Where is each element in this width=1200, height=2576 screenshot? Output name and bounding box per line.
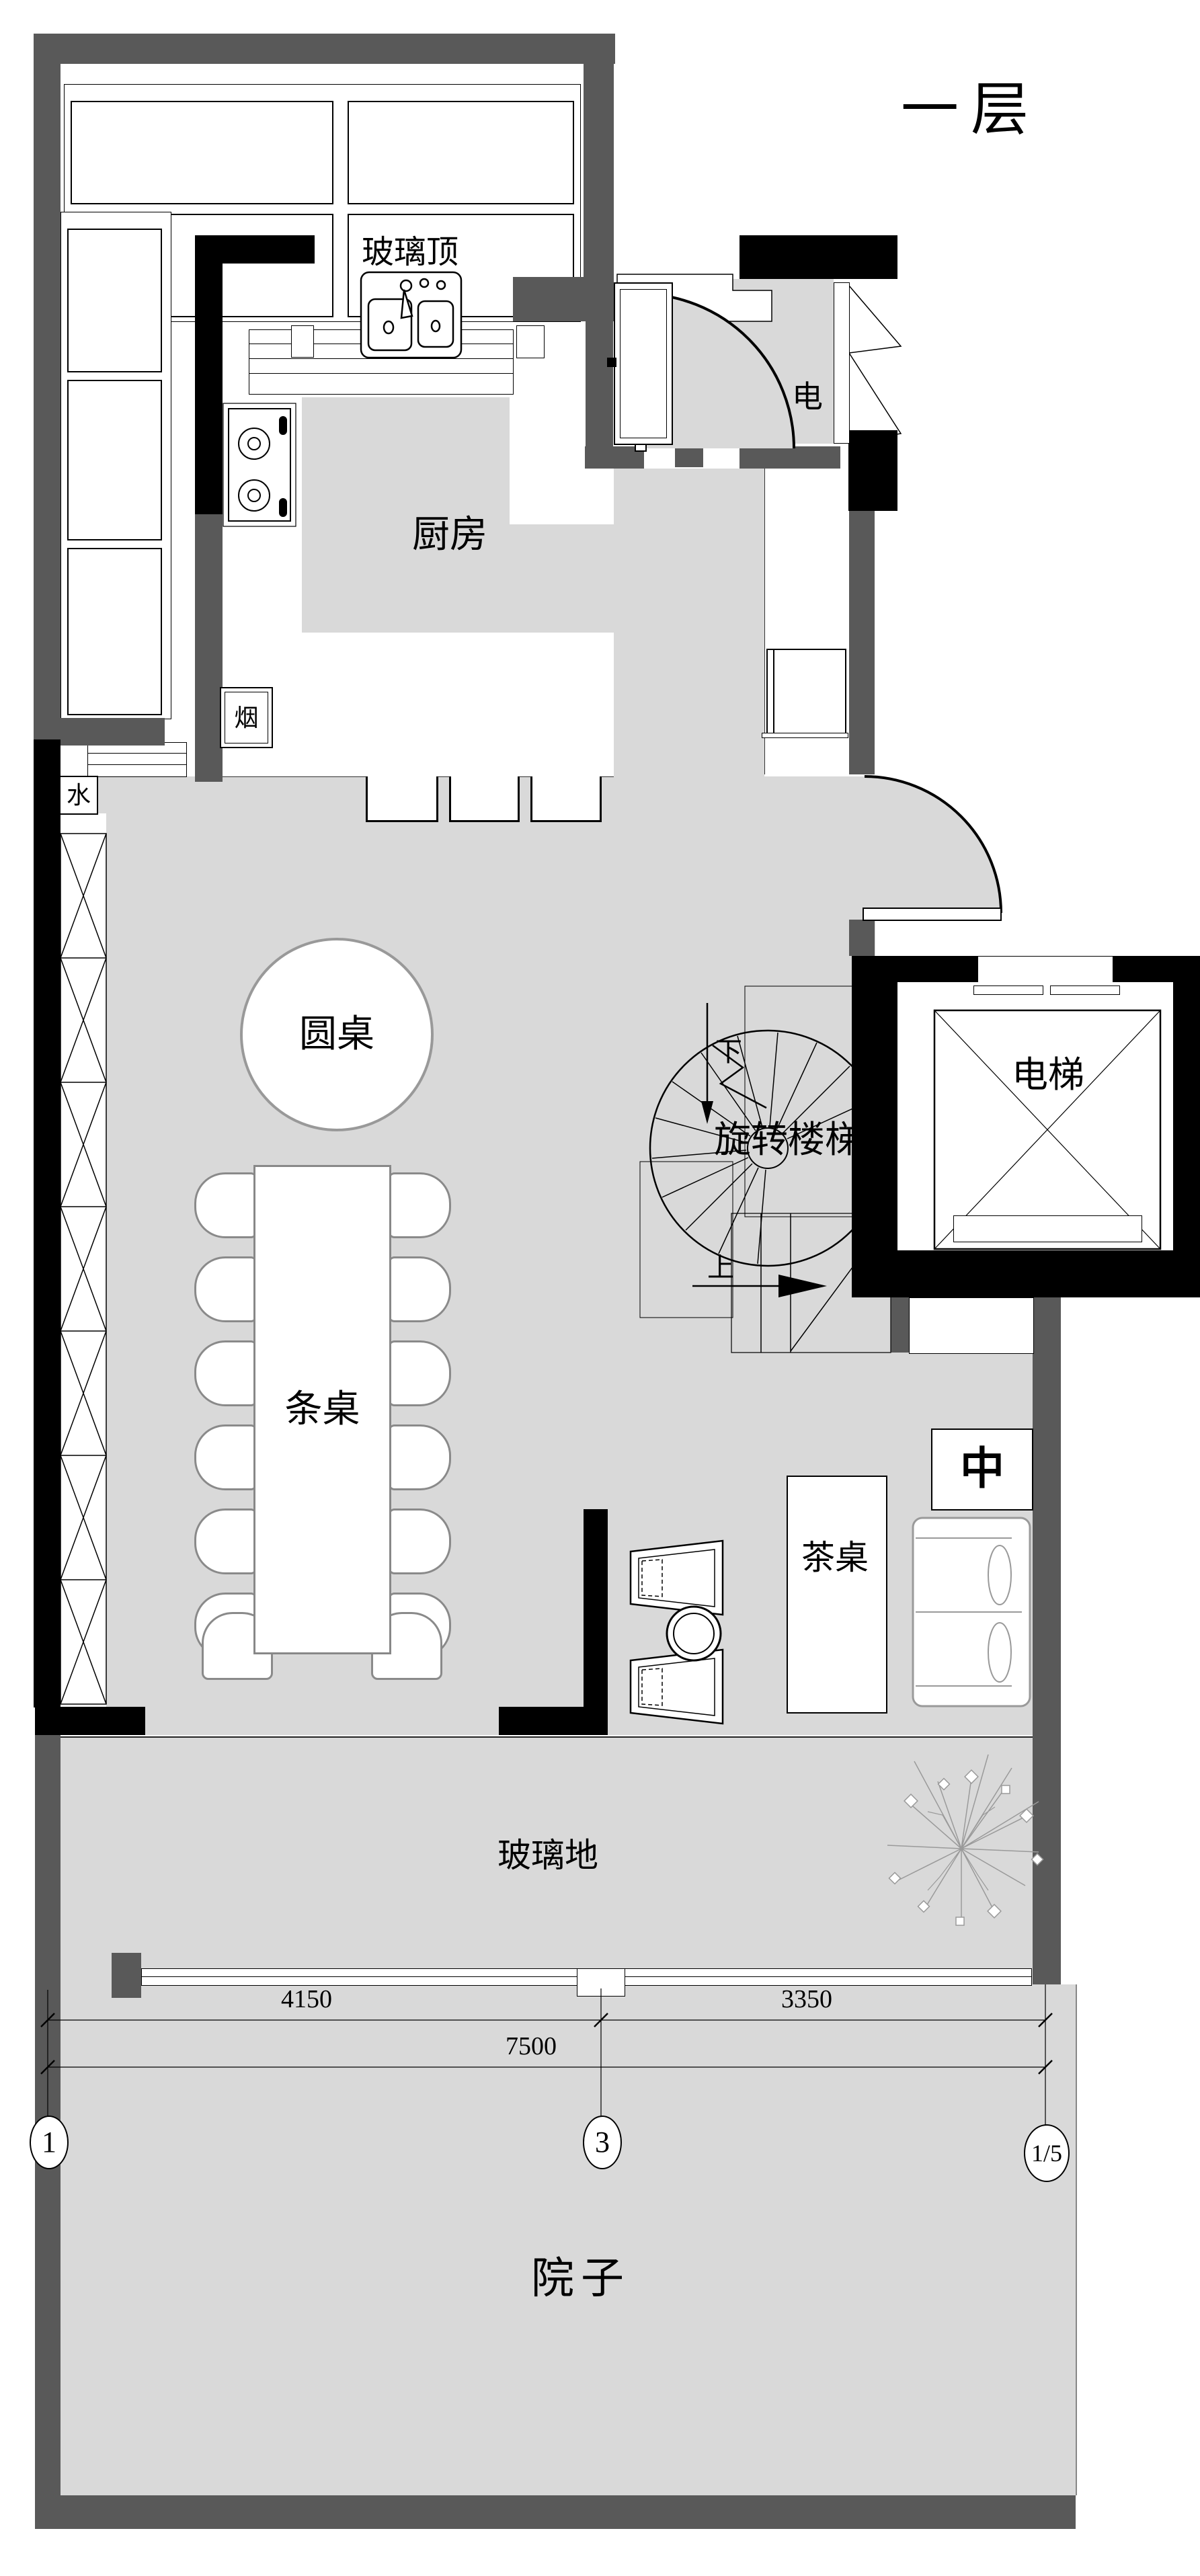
dining-chair — [388, 1508, 451, 1574]
wall-left-upper — [34, 64, 61, 743]
grid-marker-1-text: 1 — [42, 2128, 56, 2157]
wall-kitchen-black-v — [195, 235, 223, 514]
foyer-cabinet — [766, 649, 846, 735]
grid-marker-1-5: 1/5 — [1024, 2124, 1070, 2182]
courtyard-label: 院子 — [531, 2257, 631, 2300]
wall-top — [34, 34, 615, 64]
tea-table-label: 茶桌 — [801, 1541, 869, 1574]
grid-marker-3-text: 3 — [595, 2128, 610, 2157]
elevator-door-slot — [973, 985, 1043, 995]
dining-chair — [194, 1172, 257, 1238]
water-heater — [614, 282, 673, 445]
kitchen-island-floor — [302, 397, 510, 524]
curtain-wall-strip — [61, 813, 106, 1707]
wall-tea-stub-black — [584, 1509, 608, 1735]
window-sill — [87, 742, 187, 777]
foyer-cabinet-base — [762, 733, 848, 738]
dining-chair — [194, 1256, 257, 1322]
glass-roof-panel — [71, 101, 333, 204]
dining-chair — [194, 1424, 257, 1490]
elevator-lobby — [897, 982, 1173, 1250]
long-table: 条桌 — [253, 1165, 391, 1654]
elevator-door-slot — [1050, 985, 1120, 995]
water-riser-box: 水 — [59, 776, 98, 815]
kitchen-top-window-band — [249, 329, 514, 395]
dim-3350: 3350 — [781, 1986, 832, 2012]
floor-plan-canvas: 圆桌 条桌 茶桌 中 水 烟 一层 玻璃顶 厨房 电 旋转楼梯 下 上 电梯 玻… — [0, 0, 1200, 2576]
wall-entry-door-stub — [849, 920, 875, 956]
grid-marker-1: 1 — [30, 2116, 69, 2169]
wall-closet-top-black — [739, 235, 897, 279]
bar-stool — [530, 776, 602, 822]
wall-bottomleft-black — [35, 1707, 145, 1735]
left-cabinet-panel — [67, 548, 162, 715]
dining-chair — [388, 1256, 451, 1322]
grid-marker-3: 3 — [583, 2116, 622, 2169]
equipment-box: 中 — [931, 1428, 1033, 1511]
wall-kitchen-right-b — [586, 321, 613, 449]
window-rail-notch — [577, 1968, 625, 1997]
wall-left-black — [34, 739, 61, 1707]
left-cabinet-panel — [67, 229, 162, 372]
glass-roof-panel — [348, 101, 574, 204]
electric-closet-floor — [703, 279, 834, 444]
water-riser-label: 水 — [67, 783, 91, 807]
elevator-door-gap — [978, 957, 1113, 982]
dining-chair — [194, 1340, 257, 1406]
entry-door-leaf — [863, 908, 1002, 921]
courtyard-floor — [61, 1984, 1077, 2495]
stair-up-label: 上 — [707, 1254, 734, 1281]
grid-marker-1-5-text: 1/5 — [1031, 2141, 1062, 2165]
wall-entry-right — [739, 446, 840, 469]
wall-entry-door-strip — [849, 509, 875, 774]
dining-chair — [388, 1340, 451, 1406]
equipment-symbol: 中 — [960, 1447, 1004, 1492]
wall-closet-left — [675, 279, 703, 467]
wall-bottomright-black — [499, 1707, 590, 1735]
wall-stair-stub — [891, 1297, 909, 1353]
wall-right-lower — [1033, 1297, 1061, 1984]
kitchen-stove — [223, 403, 296, 526]
spiral-stair-label: 旋转楼梯 — [714, 1121, 862, 1158]
bar-stool — [449, 776, 520, 822]
wall-glassroof-right — [584, 64, 614, 279]
smoke-flue-box: 烟 — [220, 687, 273, 748]
mullion-box — [516, 325, 545, 358]
left-cabinet-panel — [67, 380, 162, 540]
outside-right — [1061, 746, 1200, 1984]
bar-stool — [366, 776, 438, 822]
wall-kitchen-right-a — [513, 277, 614, 321]
dining-chair — [388, 1172, 451, 1238]
entry-floor — [614, 469, 764, 776]
page-title: 一层 — [901, 81, 1041, 138]
smoke-flue-label: 烟 — [234, 706, 258, 730]
dim-4150: 4150 — [281, 1986, 332, 2012]
wall-bottom — [35, 2495, 1076, 2529]
stair-down-label: 下 — [715, 1039, 742, 1065]
electric-closet-label: 电 — [792, 382, 823, 413]
round-table: 圆桌 — [240, 938, 434, 1131]
tea-table: 茶桌 — [787, 1476, 887, 1714]
dim-7500: 7500 — [506, 2034, 557, 2059]
wall-kitchen-gray-v — [195, 514, 223, 782]
glass-roof-label: 玻璃顶 — [362, 237, 458, 269]
dining-chair — [388, 1424, 451, 1490]
mullion-box — [291, 325, 314, 358]
kitchen-counter-area — [222, 633, 614, 777]
long-table-label: 条桌 — [285, 1391, 360, 1428]
dining-chair — [194, 1508, 257, 1574]
bifold-door-lines — [849, 286, 901, 442]
closet-door-leaf — [834, 282, 850, 444]
round-table-label: 圆桌 — [299, 1016, 374, 1053]
wall-closet-corner-black — [848, 430, 897, 511]
glass-floor-label: 玻璃地 — [497, 1839, 598, 1872]
kitchen-label: 厨房 — [412, 516, 487, 554]
elevator-bottom-slot — [953, 1215, 1142, 1242]
elevator-landing — [909, 1297, 1034, 1354]
window-rail-post — [112, 1953, 141, 1998]
elevator-label: 电梯 — [1012, 1057, 1084, 1093]
